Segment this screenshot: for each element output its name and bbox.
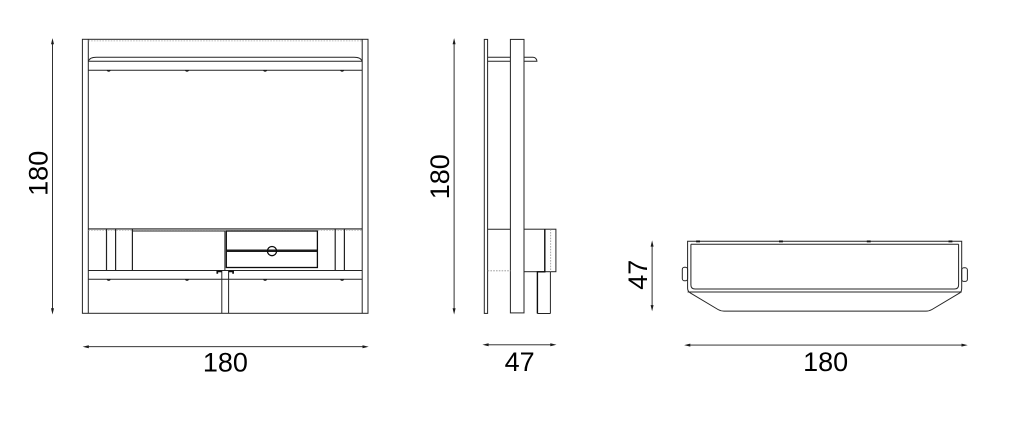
svg-text:180: 180 bbox=[803, 347, 848, 377]
svg-text:180: 180 bbox=[23, 151, 53, 196]
svg-text:180: 180 bbox=[203, 347, 248, 377]
svg-text:47: 47 bbox=[623, 260, 653, 290]
svg-text:47: 47 bbox=[505, 347, 535, 377]
svg-text:180: 180 bbox=[425, 154, 455, 199]
